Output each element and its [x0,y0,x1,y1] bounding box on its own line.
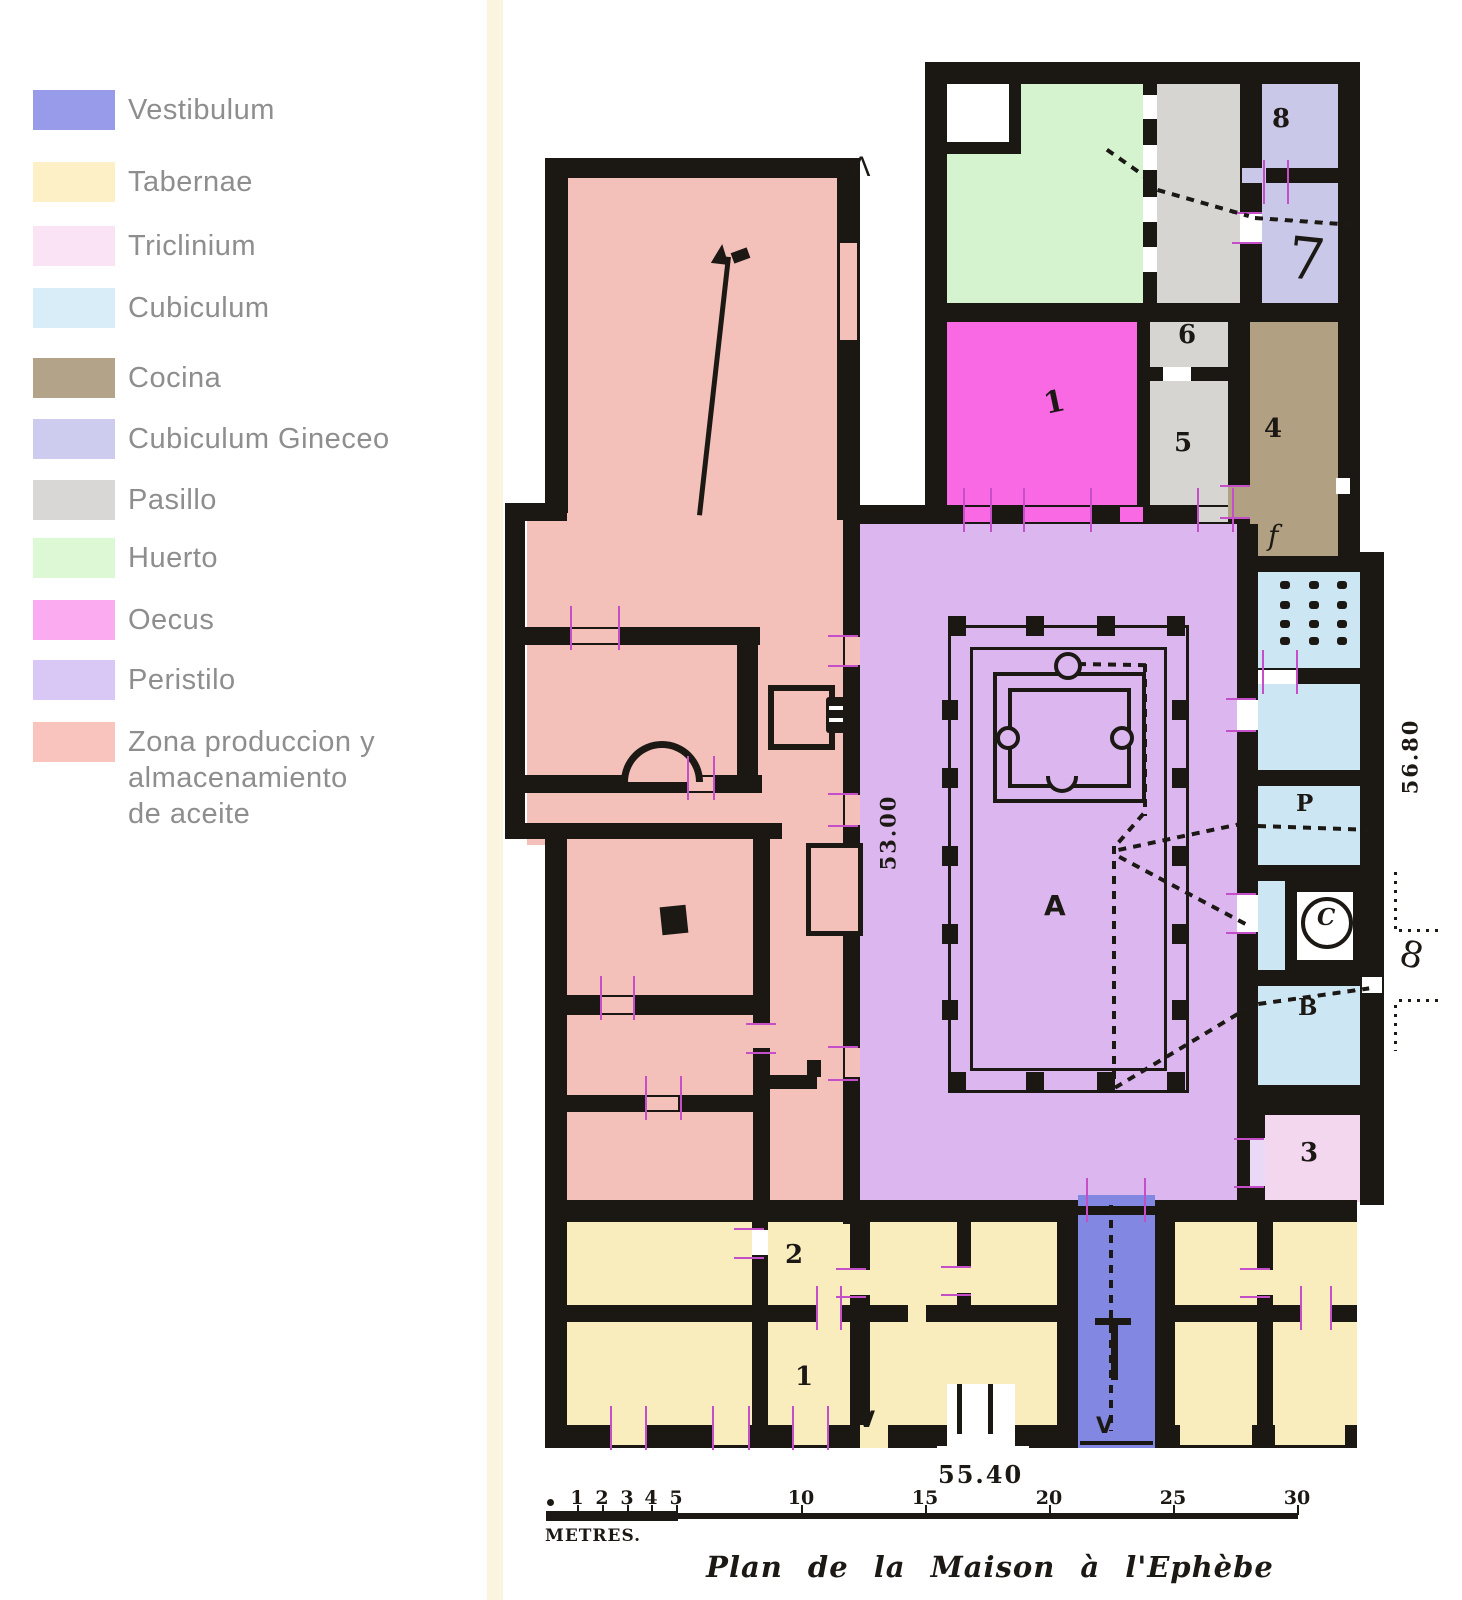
scan-edge [487,0,503,1600]
door-gap [850,1270,870,1295]
scale-tick-10: 10 [781,1487,821,1509]
scale-tick-20: 20 [1029,1487,1069,1509]
room-label-1: 1 [795,1364,813,1390]
door-gap [752,1230,768,1255]
door-tick [1226,893,1256,895]
column-block [1172,846,1188,866]
door-tick [600,976,602,1020]
wall [947,142,1021,154]
press-bed [806,843,863,936]
door-gap [753,1025,770,1048]
wall [765,1075,817,1089]
scale-tick-25: 25 [1153,1487,1193,1509]
wall [545,1200,1357,1222]
wall [1057,1200,1078,1427]
press-square [768,685,835,750]
column-block [948,1072,966,1092]
column-block [942,1000,958,1020]
door-gap [1120,507,1143,522]
door-tick [828,1046,858,1048]
door-gap [1143,197,1157,222]
wall [1258,970,1368,986]
door-tick [1232,242,1262,244]
room-label-f: f [1268,522,1278,550]
room-label-7: 7 [1285,228,1328,290]
room-label-3: 3 [1300,1140,1318,1166]
threshold-sill [1180,1445,1252,1448]
dolia-dot [1280,620,1290,628]
door-tick [1226,932,1256,934]
wall [545,158,860,178]
column-block [942,700,958,720]
dashed-path [1112,846,1116,1088]
press-device [826,697,846,733]
wall [1258,1085,1368,1101]
scale-tick-15: 15 [905,1487,945,1509]
wall [527,823,782,839]
dashed-path [1109,1205,1113,1431]
room-label-a-peristyle: A [1044,892,1066,920]
door-gap [845,795,860,825]
entrance-mark-left: V [858,1410,875,1432]
wall [1258,865,1368,881]
door-tick [680,1076,682,1120]
column-block [942,768,958,788]
threshold-sill [712,1445,748,1448]
column-block [948,616,966,636]
door-gap [908,1305,926,1322]
door-gap [840,243,857,340]
scale-zero-dot [547,1499,554,1506]
huerto-notch [947,82,1013,144]
door-gap [816,1305,840,1322]
entrance-mark-vestibule: V [1096,1416,1113,1438]
door-tick [1234,1186,1264,1188]
door-tick [1240,1268,1270,1270]
dolia-dot [1309,581,1319,589]
door-tick [1023,488,1025,532]
dolia-dot [1337,601,1347,609]
door-tick [1144,1178,1146,1222]
dolia-dot [1337,620,1347,628]
wall [1258,770,1368,786]
dashed-path [1143,664,1147,816]
door-gap [600,997,633,1013]
door-tick [1300,1286,1302,1330]
column-block [1026,616,1044,636]
impluvium-notch-right [1110,726,1134,750]
measurement-west: 53.00 [876,790,901,876]
threshold-sill [1080,1441,1153,1445]
scale-bar-thick [546,1511,678,1521]
column-block [942,846,958,866]
east-reference-mark: 8 [1396,936,1427,976]
door-tick [828,665,858,667]
door-gap [1143,247,1157,272]
room-label-b: B [1298,996,1317,1019]
wall [1237,556,1368,572]
floor-plan: 8 7 6 5 4 f 1 A P C B 3 2 1 Λ V V 8 53.0… [0,0,1462,1600]
wall [925,62,1358,84]
door-gap [845,1048,860,1077]
door-tick [828,1079,858,1081]
threshold-sill [1275,1445,1345,1448]
door-tick [840,1286,842,1330]
room-fill-pasillo [1150,82,1240,308]
door-tick [1220,517,1250,519]
impluvium-notch-left [996,726,1020,750]
door-tick [618,606,620,650]
door-tick [610,1406,612,1450]
wall [988,1384,993,1434]
scale-tick-5: 5 [656,1487,696,1509]
door-tick [570,606,572,650]
wall [925,303,1338,322]
wall [545,158,568,513]
dolia-dot [1309,601,1319,609]
door-tick [746,1023,776,1025]
dolia-dot [1309,637,1319,645]
door-tick [990,488,992,532]
door-tick [827,1406,829,1450]
room-label-4: 4 [1264,416,1282,442]
room-label-8: 8 [1272,106,1290,132]
measurement-south: 55.40 [938,1460,1023,1489]
door-tick [1197,488,1199,532]
door-tick [1090,488,1092,532]
door-gap [1143,145,1157,170]
dotted-ref-line [1394,872,1397,930]
door-gap [1250,1138,1265,1186]
door-tick [1234,1138,1264,1140]
door-tick [687,756,689,800]
door-tick [828,825,858,827]
door-tick [713,756,715,800]
room-label-6: 6 [1178,322,1196,348]
wall [505,627,760,645]
door-tick [734,1257,764,1259]
column-block [1167,616,1185,636]
door-tick [1296,650,1298,694]
column-block [1172,924,1188,944]
wall [807,1060,821,1077]
dolia-dot [1280,581,1290,589]
door-tick [816,1286,818,1330]
north-entrance-mark: Λ [852,154,870,181]
door-tick [828,635,858,637]
door-tick [1086,1178,1088,1222]
door-tick [1226,730,1256,732]
wall [545,823,567,1224]
room-fill-oecus [945,320,1137,512]
door-tick [712,1406,714,1450]
door-tick [734,1228,764,1230]
door-tick [645,1406,647,1450]
dolia-dot [1309,620,1319,628]
dolia-dot [1337,637,1347,645]
press-device-slit [829,706,843,710]
wall [1137,322,1150,520]
door-gap [957,1268,971,1293]
door-tick [645,1076,647,1120]
dolia-dot [1280,601,1290,609]
scale-tick-30: 30 [1277,1487,1317,1509]
door-gap [1198,507,1228,522]
wall [545,1222,567,1448]
wall [545,1305,1357,1322]
room-label-p: P [1296,792,1313,815]
door-tick [1226,698,1256,700]
door-gap [645,1097,678,1110]
door-gap [1237,700,1258,730]
door-tick [963,488,965,532]
door-gap [1257,1270,1273,1295]
wall [1240,82,1262,308]
door-gap [1143,95,1157,119]
column-block [1167,1072,1185,1092]
column-block [1172,1000,1188,1020]
door-gap [1336,478,1350,494]
north-arrow-head [711,243,731,265]
dolia-dot [1280,637,1290,645]
door-tick [828,793,858,795]
threshold-sill [610,1445,645,1448]
column-block [1172,700,1188,720]
door-tick [1263,160,1265,204]
door-tick [941,1294,971,1296]
door-tick [1232,488,1234,532]
page: Vestibulum Tabernae Triclinium Cubiculum… [0,0,1462,1600]
door-gap [845,637,860,665]
door-tick [1287,160,1289,204]
door-tick [746,1052,776,1054]
storage-block [660,905,689,936]
wall [925,62,947,524]
dolia-dot [1337,581,1347,589]
door-tick [941,1266,971,1268]
door-tick [1240,1296,1270,1298]
column-block [1097,616,1115,636]
wall [1258,1100,1368,1115]
door-gap [963,507,990,522]
press-device-slit [829,718,843,722]
scale-unit: METRES. [545,1526,641,1546]
door-gap [1025,507,1090,522]
column-block [1172,768,1188,788]
door-tick [633,976,635,1020]
door-tick [1220,485,1250,487]
door-tick [792,1406,794,1450]
dotted-ref-line [1399,929,1441,932]
column-block [1026,1072,1044,1092]
outline-mask [527,845,545,1222]
dotted-ref-line [1394,1005,1397,1051]
plan-caption: Plan de la Maison à l'Ephèbe [700,1550,1280,1584]
room-label-c: C [1317,906,1335,929]
wall [957,1384,962,1434]
threshold-sill [792,1445,827,1448]
measurement-east: 56.80 [1398,713,1423,801]
door-tick [1330,1286,1332,1330]
door-gap [1163,367,1191,381]
dotted-ref-line [1399,999,1441,1002]
door-gap [1300,1305,1330,1322]
door-tick [836,1268,866,1270]
column-block [942,924,958,944]
door-tick [1262,650,1264,694]
door-tick [836,1296,866,1298]
wall [737,627,758,793]
wall [545,995,770,1015]
wall [1257,1222,1273,1427]
room-label-5: 5 [1174,430,1192,456]
room-label-2: 2 [785,1242,803,1268]
door-gap [570,629,618,643]
wall [1155,1200,1175,1427]
room-fill-cubiculum1 [1258,684,1368,770]
door-tick [748,1406,750,1450]
